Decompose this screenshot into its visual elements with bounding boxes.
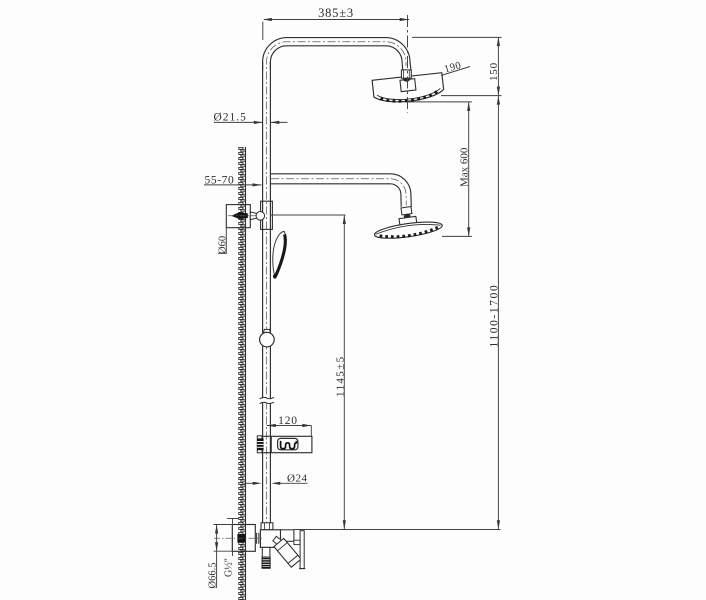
svg-text:Ø24: Ø24 <box>287 473 307 485</box>
svg-text:Max 600: Max 600 <box>458 147 470 187</box>
svg-text:Ø21.5: Ø21.5 <box>214 112 247 124</box>
svg-text:385±3: 385±3 <box>318 6 354 20</box>
svg-text:G½″: G½″ <box>223 558 234 577</box>
svg-text:55-70: 55-70 <box>205 175 235 187</box>
svg-text:1145±5: 1145±5 <box>335 355 347 397</box>
svg-text:Ø60: Ø60 <box>218 236 229 254</box>
svg-text:190: 190 <box>443 60 463 75</box>
svg-text:120: 120 <box>278 415 298 427</box>
svg-text:150: 150 <box>488 62 500 81</box>
svg-text:Ø66.5: Ø66.5 <box>207 563 218 589</box>
svg-text:1100-1700: 1100-1700 <box>488 284 500 348</box>
